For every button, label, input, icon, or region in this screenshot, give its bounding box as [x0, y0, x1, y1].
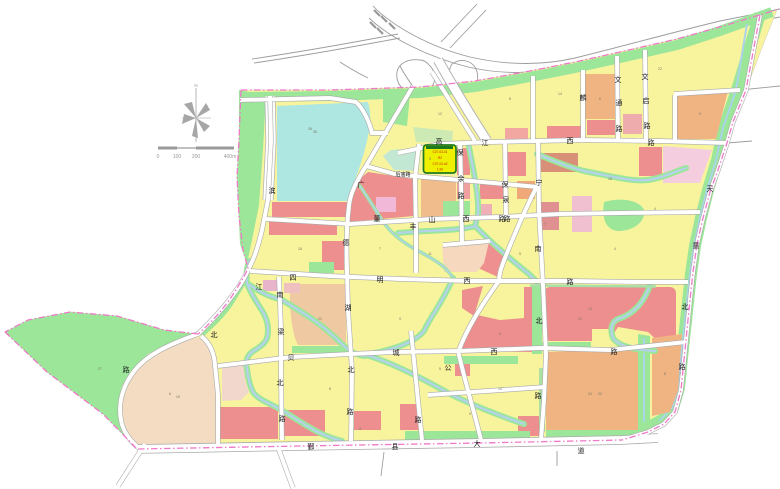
svg-text:路: 路 [611, 347, 618, 356]
svg-text:19: 19 [176, 395, 180, 399]
svg-text:保: 保 [502, 180, 509, 189]
svg-text:江: 江 [256, 283, 263, 291]
svg-text:9: 9 [469, 412, 471, 416]
svg-text:梁: 梁 [278, 327, 285, 336]
svg-text:8: 8 [664, 372, 666, 376]
svg-text:西: 西 [464, 277, 471, 285]
svg-text:广: 广 [358, 180, 365, 189]
svg-text:麟: 麟 [580, 93, 587, 102]
svg-text:南: 南 [277, 290, 284, 299]
svg-text:R2: R2 [438, 156, 442, 160]
svg-text:4: 4 [614, 247, 616, 251]
svg-text:400m: 400m [224, 154, 237, 160]
svg-text:路: 路 [415, 415, 422, 424]
svg-text:文: 文 [642, 72, 649, 81]
svg-text:6: 6 [599, 97, 601, 101]
svg-text:北: 北 [277, 379, 284, 387]
svg-text:宁: 宁 [536, 178, 543, 187]
svg-text:德: 德 [343, 238, 350, 247]
svg-text:贝: 贝 [288, 354, 295, 362]
svg-text:3: 3 [359, 427, 361, 431]
svg-text:路: 路 [535, 391, 542, 400]
svg-text:西: 西 [491, 348, 498, 356]
svg-text:4: 4 [654, 207, 656, 211]
svg-text:北: 北 [211, 331, 218, 339]
svg-text:路: 路 [648, 138, 655, 147]
svg-text:14: 14 [558, 92, 562, 96]
svg-text:1.90: 1.90 [437, 168, 443, 172]
svg-text:27: 27 [98, 367, 102, 371]
svg-text:天: 天 [707, 185, 714, 193]
svg-text:余: 余 [458, 174, 465, 183]
svg-text:北: 北 [682, 303, 689, 311]
svg-text:10: 10 [498, 387, 502, 391]
svg-text:11: 11 [428, 252, 432, 256]
svg-text:7: 7 [544, 222, 546, 226]
svg-text:16: 16 [608, 177, 612, 181]
svg-text:9: 9 [699, 112, 701, 116]
svg-text:通: 通 [616, 98, 623, 107]
svg-text:24: 24 [588, 392, 592, 396]
svg-text:18: 18 [298, 247, 302, 251]
svg-text:山: 山 [429, 215, 436, 224]
svg-text:100: 100 [173, 154, 182, 160]
svg-text:路: 路 [458, 191, 465, 200]
svg-text:7: 7 [379, 247, 381, 251]
svg-text:路: 路 [347, 407, 354, 416]
svg-text:路: 路 [616, 124, 623, 133]
svg-text:路: 路 [567, 277, 574, 286]
svg-text:高: 高 [436, 137, 443, 146]
svg-text:12: 12 [438, 112, 442, 116]
svg-text:后庙路: 后庙路 [395, 171, 410, 178]
svg-text:四: 四 [290, 274, 297, 282]
svg-text:13: 13 [578, 317, 582, 321]
svg-text:明: 明 [377, 276, 384, 284]
svg-text:北: 北 [348, 366, 355, 374]
svg-text:6: 6 [169, 392, 171, 396]
svg-text:5: 5 [429, 157, 431, 161]
svg-text:N: N [194, 83, 197, 88]
svg-text:5: 5 [439, 367, 441, 371]
svg-text:路: 路 [679, 362, 686, 371]
svg-text:南: 南 [535, 244, 542, 253]
svg-text:鄞: 鄞 [308, 442, 315, 451]
svg-text:启: 启 [643, 96, 650, 105]
svg-text:童: 童 [693, 241, 700, 250]
svg-text:路: 路 [279, 414, 286, 423]
svg-text:35: 35 [308, 127, 312, 131]
svg-text:县: 县 [392, 443, 399, 451]
svg-text:道: 道 [578, 446, 585, 455]
svg-text:湖: 湖 [345, 303, 352, 312]
svg-text:8: 8 [509, 97, 511, 101]
svg-text:保: 保 [457, 148, 464, 157]
svg-text:35: 35 [313, 130, 317, 134]
svg-text:22: 22 [598, 392, 602, 396]
svg-text:西: 西 [567, 137, 574, 145]
svg-text:5: 5 [519, 252, 521, 256]
svg-text:文: 文 [615, 75, 622, 84]
svg-text:9: 9 [399, 317, 401, 321]
svg-text:C07-03-01: C07-03-01 [432, 150, 447, 154]
svg-text:6: 6 [499, 332, 501, 336]
svg-text:8: 8 [329, 387, 331, 391]
svg-text:公: 公 [445, 364, 452, 372]
svg-text:22: 22 [658, 67, 662, 71]
svg-text:大: 大 [474, 439, 481, 448]
svg-text:北: 北 [536, 317, 543, 325]
svg-text:西: 西 [463, 215, 470, 223]
svg-text:董: 董 [374, 214, 381, 223]
svg-text:13: 13 [588, 307, 592, 311]
svg-text:城: 城 [393, 349, 400, 357]
svg-text:丰: 丰 [410, 222, 417, 231]
svg-text:泉: 泉 [503, 195, 510, 204]
svg-text:路: 路 [644, 121, 651, 130]
svg-text:7: 7 [679, 372, 681, 376]
svg-text:江: 江 [482, 139, 489, 147]
svg-text:路: 路 [499, 214, 506, 223]
svg-text:C07-03-d2: C07-03-d2 [432, 162, 447, 166]
svg-text:21: 21 [318, 317, 322, 321]
svg-text:200: 200 [192, 154, 201, 160]
svg-text:滨: 滨 [269, 186, 276, 195]
svg-text:路: 路 [123, 365, 130, 374]
svg-text:0: 0 [157, 154, 160, 160]
